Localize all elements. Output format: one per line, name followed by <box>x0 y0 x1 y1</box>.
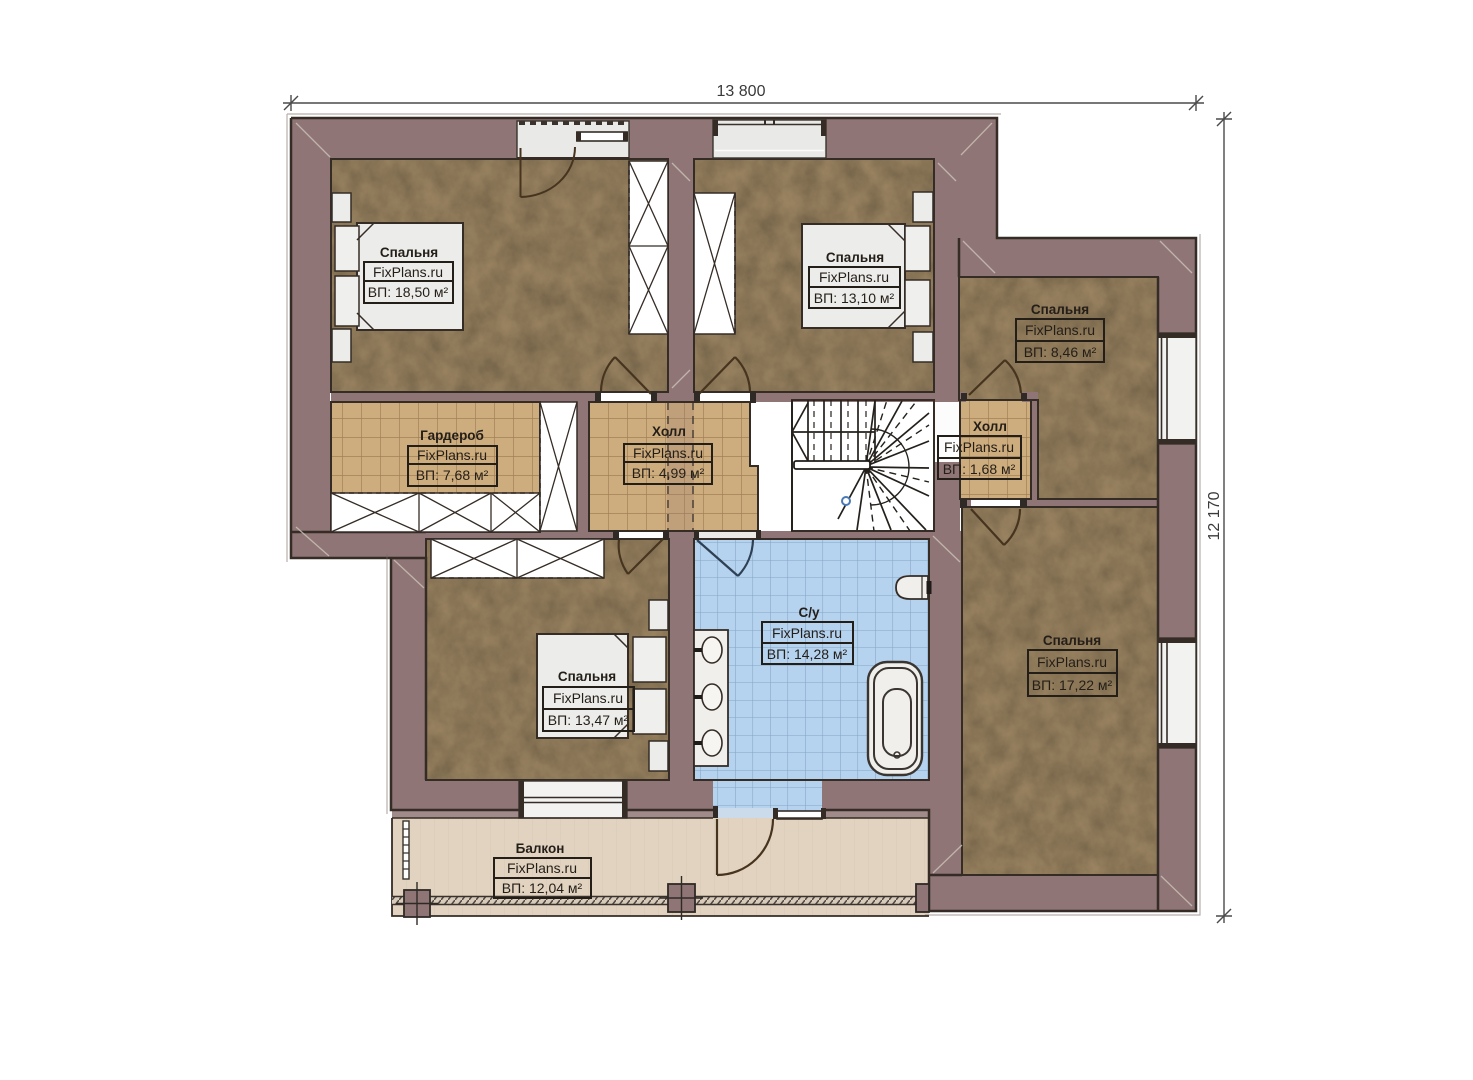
svg-text:12 170: 12 170 <box>1206 491 1223 540</box>
svg-text:FixPlans.ru: FixPlans.ru <box>944 439 1014 455</box>
svg-text:ВП: 14,28 м²: ВП: 14,28 м² <box>767 646 848 662</box>
svg-text:ВП: 18,50 м²: ВП: 18,50 м² <box>368 284 449 300</box>
svg-text:FixPlans.ru: FixPlans.ru <box>373 264 443 280</box>
svg-text:Спальня: Спальня <box>1031 302 1089 317</box>
svg-text:Спальня: Спальня <box>1043 633 1101 648</box>
svg-text:ВП: 8,46 м²: ВП: 8,46 м² <box>1024 344 1097 360</box>
svg-text:FixPlans.ru: FixPlans.ru <box>507 860 577 876</box>
svg-text:ВП: 17,22 м²: ВП: 17,22 м² <box>1032 677 1113 693</box>
svg-text:ВП: 7,68 м²: ВП: 7,68 м² <box>416 467 489 483</box>
svg-text:ВП: 13,10 м²: ВП: 13,10 м² <box>814 290 895 306</box>
svg-text:FixPlans.ru: FixPlans.ru <box>633 445 703 461</box>
svg-text:ВП: 13,47 м²: ВП: 13,47 м² <box>548 712 629 728</box>
svg-text:Спальня: Спальня <box>558 669 616 684</box>
svg-text:Спальня: Спальня <box>826 250 884 265</box>
svg-text:FixPlans.ru: FixPlans.ru <box>1025 322 1095 338</box>
svg-text:FixPlans.ru: FixPlans.ru <box>772 625 842 641</box>
svg-text:Холл: Холл <box>973 419 1007 434</box>
svg-text:FixPlans.ru: FixPlans.ru <box>1037 654 1107 670</box>
svg-text:FixPlans.ru: FixPlans.ru <box>417 447 487 463</box>
svg-text:FixPlans.ru: FixPlans.ru <box>553 690 623 706</box>
svg-text:Спальня: Спальня <box>380 245 438 260</box>
svg-text:13 800: 13 800 <box>717 83 766 100</box>
svg-text:ВП: 12,04 м²: ВП: 12,04 м² <box>502 880 583 896</box>
svg-text:С/у: С/у <box>798 605 820 620</box>
svg-text:ВП: 4,99 м²: ВП: 4,99 м² <box>632 465 705 481</box>
svg-text:Гардероб: Гардероб <box>420 428 484 443</box>
svg-text:Балкон: Балкон <box>516 841 565 856</box>
svg-text:FixPlans.ru: FixPlans.ru <box>819 269 889 285</box>
svg-text:Холл: Холл <box>652 424 686 439</box>
svg-text:ВП: 1,68 м²: ВП: 1,68 м² <box>943 461 1016 477</box>
